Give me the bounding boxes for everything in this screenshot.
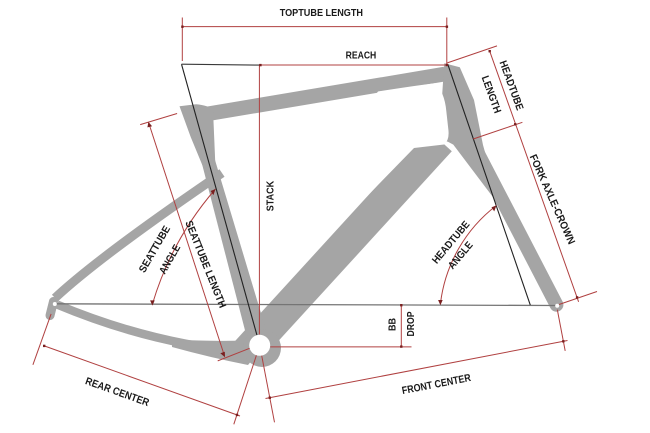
- svg-text:STACK: STACK: [265, 180, 277, 211]
- svg-text:BB: BB: [386, 318, 398, 331]
- svg-text:TOPTUBE LENGTH: TOPTUBE LENGTH: [280, 7, 363, 19]
- svg-text:DROP: DROP: [405, 312, 417, 337]
- svg-text:REACH: REACH: [346, 50, 377, 62]
